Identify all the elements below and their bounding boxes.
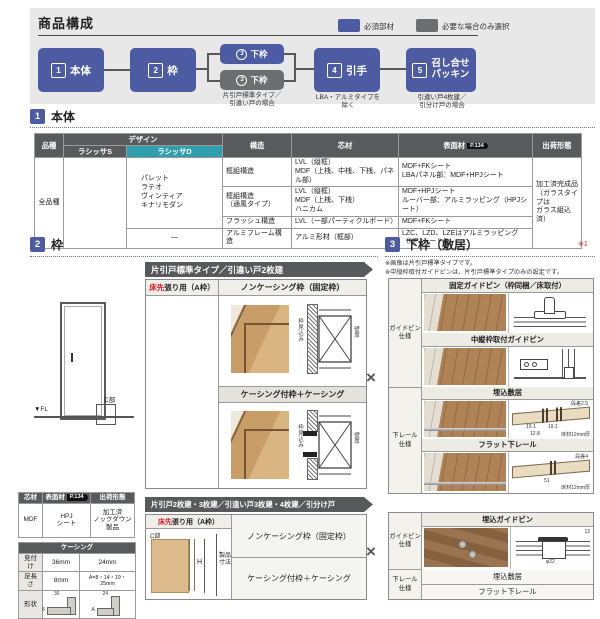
flow-branch-line — [207, 53, 209, 82]
guidepin-spec-label: ガイドピン 仕様 — [389, 279, 422, 388]
floor-first-red: 床先 — [158, 517, 172, 527]
section3-note1: ※画像は片引戸標準タイプです。 — [385, 260, 476, 269]
flow-node-lower-frame-optional: 3 下枠 — [220, 70, 284, 90]
legend-required-swatch — [338, 19, 360, 32]
fixed-guidepin-diagram — [510, 293, 592, 331]
section3-header: 3 下枠（敷居） — [385, 236, 478, 253]
cell-hyomen: MDF+FKシート LBAパネル部：MDF+HPJシート — [399, 158, 533, 187]
groove-line — [546, 408, 548, 422]
product-composition-panel: 商品構成 必須部材 必要な場合のみ選択 1 本体 2 枠 3 下枠 3 下枠 4… — [30, 8, 595, 104]
groove-line — [542, 409, 544, 423]
floor-line — [514, 377, 586, 379]
cell-kouzou: アルミフレーム構造 — [223, 228, 292, 249]
banner1-text: 片引戸標準タイプ／引違い戸2枚建 — [151, 264, 283, 276]
casing-profile-36: 36 8 — [45, 592, 77, 616]
flow-num-5: 5 — [412, 63, 427, 78]
legend-required-label: 必須部材 — [364, 21, 394, 32]
section2-rule — [30, 256, 378, 257]
flow-connector — [380, 68, 406, 70]
cell-hyomen: MDF+FKシート — [399, 216, 533, 228]
dim-128: 12.8 — [530, 431, 540, 437]
lower-frame-table-2: ガイドピン 仕様 下レール 仕様 埋込ガイドピン φ22 12 埋込敷居 フラッ… — [388, 512, 594, 600]
casing-shape-36: 36 8 — [43, 590, 80, 618]
dim-label-wakumikomi: 枠見込み — [296, 318, 304, 342]
plank-lines — [424, 294, 506, 331]
flow-label-packing: 召し合せ パッキン — [431, 59, 469, 81]
cell-divider — [508, 452, 509, 493]
noncasing-cell: ノンケーシング枠（固定枠） — [232, 515, 366, 558]
embedded-sill-header: 埋込敷居 — [422, 387, 593, 400]
banner-multi-panel-type: 片引戸2枚建・3枚建／引違い戸3枚建・4枚建／引分け戸 — [145, 497, 373, 512]
casing-profile-24: 24 A — [95, 592, 121, 616]
section3-title: 下枠（敷居） — [406, 236, 478, 253]
fixed-guidepin-header: 固定ガイドピン（枠同梱／床取付） — [422, 279, 593, 293]
flat-rail-header: フラット下レール — [422, 439, 593, 452]
groove-line — [556, 407, 558, 421]
cell-lasissa-s-empty — [64, 158, 127, 249]
flow-note-pull-handle: LBA・アルミタイプを 除く — [306, 94, 390, 110]
cell-hinshu: 全品種 — [35, 158, 64, 249]
rail-board — [512, 458, 590, 481]
frame-panel-2: 床先張り用（A枠） C部 H 製品 寸法 ノンケーシング枠（固定枠） ケーシング… — [145, 514, 367, 600]
flow-node-packing: 5 召し合せ パッキン — [406, 48, 476, 92]
col-header-hyomen: 表面材P.134 — [399, 134, 533, 158]
cell-divider — [508, 293, 509, 333]
casing-trim — [303, 431, 317, 436]
dim-191b: 19.1 — [548, 424, 558, 430]
mat-hyomen-label: 表面材 — [45, 494, 65, 501]
center-guidepin-photo — [424, 348, 506, 385]
center-guidepin-diagram — [510, 347, 592, 385]
col-header-hinshu: 品種 — [35, 134, 64, 158]
cell-kouzou: 框組構造 — [223, 158, 292, 187]
door-corner-photo — [231, 305, 289, 373]
casing-table-title: ケーシング — [19, 543, 136, 554]
cell-shinzai: アルミ形材（框部） — [292, 228, 399, 249]
cell-hyomen: MDF+HPJシート ルーバー部：アルミラッピング（HPJシート） — [399, 187, 533, 216]
dim-label-kabeatsu: 壁厚 — [352, 432, 360, 444]
wall-hatch — [307, 304, 318, 374]
dim-diameter: φ22 — [546, 559, 555, 565]
shape36-foot — [47, 607, 71, 615]
flow-num-2: 2 — [148, 63, 163, 78]
embedded-sill-diagram: 段差2.5 19.1 19.1 12.8 床材12mm厚 — [510, 400, 592, 438]
flow-note-packing: 引違い戸4枚建／ 引分け戸の場合 — [394, 94, 490, 110]
product-dim-line — [216, 534, 217, 596]
plank-lines — [424, 348, 506, 385]
casing-mitsuke-24: 24mm — [80, 553, 136, 572]
t2-flat-rail-row: フラット下レール — [422, 585, 593, 599]
groove-line — [560, 407, 562, 421]
legend-optional-swatch — [416, 19, 438, 32]
shape24-leg: A — [92, 607, 95, 613]
mat-header-hyomen: 表面材P.134 — [43, 493, 91, 504]
flow-num-1: 1 — [51, 63, 66, 78]
dim-yuka: 床材12mm厚 — [561, 484, 590, 491]
wall-hatch — [307, 458, 318, 480]
flow-label-lower-frame: 下枠 — [250, 74, 267, 86]
guide-pin-dot — [468, 550, 477, 559]
page-title: 商品構成 — [38, 13, 94, 32]
flow-num-3a: 3 — [236, 49, 247, 60]
door-corner-photo-casing — [231, 411, 289, 479]
fixed-guidepin-photo — [424, 294, 506, 331]
embedded-guidepin-header: 埋込ガイドピン — [422, 513, 593, 527]
dim-label-kabeatsu: 壁厚 — [352, 326, 360, 338]
flow-node-frame: 2 枠 — [130, 48, 196, 92]
screw-hole — [524, 362, 529, 367]
col-header-kouzou: 構造 — [223, 134, 292, 158]
dim-label-wakumikomi: 枠見込み — [296, 424, 304, 448]
board-face — [512, 407, 590, 426]
embedded-guidepin-photo — [424, 528, 508, 567]
flow-label-body: 本体 — [70, 63, 91, 78]
section2-number: 2 — [30, 237, 45, 252]
shape36-leg: 8 — [42, 607, 45, 613]
floor-first-header: 床先張り用（A枠） — [146, 515, 232, 529]
casing-shape-label: 形状 — [19, 590, 43, 618]
bracket-foot — [564, 367, 574, 379]
lower-frame-table-1: ガイドピン 仕様 下レール 仕様 固定ガイドピン（枠同梱／床取付） 中縦枠取付ガ… — [388, 278, 594, 494]
cell-kouzou: フラッシュ構造 — [223, 216, 292, 228]
shape24-dim: 24 — [103, 591, 109, 597]
main-body-spec-table: 品種 デザイン 構造 芯材 表面材P.134 出荷形態 ラシッサS ラシッサD … — [34, 133, 582, 249]
h-dim-label: H — [197, 559, 202, 566]
dim-191a: 19.1 — [526, 424, 536, 430]
col-header-lasissa-s: ラシッサS — [64, 146, 127, 158]
plank-lines — [424, 401, 506, 437]
page-ref-badge: P.134 — [67, 494, 88, 501]
floor-first-header: 床先張り用（A枠） — [146, 280, 219, 296]
casing-ashinaga-8: 8mm — [43, 572, 80, 591]
cell-divider — [510, 527, 511, 569]
col-header-lasissa-d: ラシッサD — [127, 146, 223, 158]
frame-section-wood — [151, 539, 189, 593]
mat-shinzai: MDF — [19, 503, 43, 537]
floor-first-red: 床先 — [149, 282, 164, 293]
flow-label-lower-frame: 下枠 — [250, 48, 267, 60]
flow-node-body: 1 本体 — [38, 48, 104, 92]
section1-title: 本体 — [51, 108, 75, 125]
casing-shape-24: 24 A — [80, 590, 136, 618]
banner-standard-type: 片引戸標準タイプ／引違い戸2枚建 — [145, 262, 373, 277]
casing-mitsuke-label: 見付け — [19, 553, 43, 572]
channel-line — [574, 349, 575, 377]
cell-shinzai: LVL（縦框） MDF（上桟、中桟、下桟、パネル部） — [292, 158, 399, 187]
title-underline — [38, 35, 478, 36]
plank-lines — [424, 453, 506, 491]
h-dim-line — [204, 539, 205, 593]
flow-node-lower-frame-required: 3 下枠 — [220, 44, 284, 64]
rail-spec-label: 下レール 仕様 — [389, 570, 422, 599]
flow-label-pull-handle: 引手 — [346, 63, 367, 78]
cell-design-dash: — — [127, 228, 223, 249]
cell-divider — [508, 347, 509, 387]
section1-header: 1 本体 — [30, 108, 75, 125]
flat-rail-row: 段差4 51 床材12mm厚 — [422, 452, 593, 493]
floor-first-rest: 張り用（A枠） — [172, 517, 219, 527]
casing-band: ケーシング付枠＋ケーシング — [219, 386, 366, 403]
cell-designs: パレット ラテオ ヴィンティア キナリモダン — [127, 158, 223, 229]
flow-num-4: 4 — [327, 63, 342, 78]
casing-cell: ケーシング付枠＋ケーシング — [232, 558, 366, 599]
flow-connector — [296, 68, 314, 70]
mat-shukka: 加工済 ノックダウン 製品 — [91, 503, 135, 537]
banner2-text: 片引戸2枚建・3枚建／引違い戸3枚建・4枚建／引分け戸 — [151, 500, 335, 510]
casing-ashinaga-a: A=8・14・19・25mm — [80, 572, 136, 591]
section3-note2: ※中縦枠取付ガイドピンは、片引戸標準タイプのみの設定です。 — [385, 269, 563, 278]
casing-mitsuke-36: 36mm — [43, 553, 80, 572]
section3-number: 3 — [385, 237, 400, 252]
casing-trim — [303, 452, 317, 457]
noncasing-section-diagram: 枠見込み 壁厚 — [296, 300, 360, 378]
mat-header-shukka: 出荷形態 — [91, 493, 135, 504]
cell-shinzai: LVL（縦框） MDF（上桟、下桟） ハニカム — [292, 187, 399, 216]
door-handle-mark — [71, 353, 73, 362]
embedded-sill-row: 段差2.5 19.1 19.1 12.8 床材12mm厚 — [422, 400, 593, 439]
guide-pin-dot — [458, 540, 467, 549]
cell-shinzai: LVL（一部パーティクルボード） — [292, 216, 399, 228]
casing-section-diagram: 枠見込み 壁厚 — [296, 406, 360, 484]
flat-rail-strip — [424, 482, 506, 485]
cross-mark: × — [366, 368, 376, 388]
col-header-design: デザイン — [64, 134, 223, 146]
product-dim-label: 製品 寸法 — [219, 553, 231, 567]
frame-edge-lines — [189, 539, 195, 591]
guidepin-spec-label: ガイドピン 仕様 — [389, 513, 422, 570]
cross-mark: × — [366, 542, 376, 562]
table-row: 全品種 パレット ラテオ ヴィンティア キナリモダン 框組構造 LVL（縦框） … — [35, 158, 582, 187]
screw-hole — [532, 362, 537, 367]
center-guidepin-row — [422, 347, 593, 387]
pin-cap — [538, 537, 568, 541]
col-header-shinzai: 芯材 — [292, 134, 399, 158]
cell-kouzou: 框組構造 （通風タイプ） — [223, 187, 292, 216]
floor-level-label: ▼FL — [34, 406, 48, 413]
hyomen-label: 表面材 — [443, 141, 465, 150]
c-detail-label: C部 — [104, 394, 115, 404]
frame-panel-1: 床先張り用（A枠） ノンケーシング枠（固定枠） 枠見込み 壁厚 ケーシング付枠＋… — [145, 279, 367, 489]
frame-xbox-diagram — [318, 414, 352, 476]
groove-line — [550, 461, 552, 475]
flow-connector — [208, 80, 220, 82]
flow-connector — [208, 53, 220, 55]
center-guidepin-header: 中縦枠取付ガイドピン — [422, 333, 593, 347]
embedded-sill-photo — [424, 401, 506, 437]
mat-hyomen: HPJ シート — [43, 503, 91, 537]
groove-line — [554, 461, 556, 475]
section3-rule — [385, 256, 595, 257]
fixed-guidepin-row — [422, 293, 593, 333]
channel-line — [562, 349, 563, 377]
noncasing-header: ノンケーシング枠（固定枠） — [219, 280, 366, 296]
rail-spec-label: 下レール 仕様 — [389, 388, 422, 493]
cell-shukka: 加工済完成品 （ガラスタイプは ガラス組込済） — [533, 158, 582, 249]
cell-divider — [508, 400, 509, 439]
section2-title: 枠 — [51, 236, 63, 253]
dim-depth: 12 — [584, 529, 590, 535]
legend-optional-label: 必要な場合のみ選択 — [442, 21, 510, 32]
page-ref-badge: P.134 — [467, 143, 488, 150]
col-header-shukka: 出荷形態 — [533, 134, 582, 158]
casing-ashinaga-label: 足長さ — [19, 572, 43, 591]
frame-material-table: 芯材 表面材P.134 出荷形態 MDF HPJ シート 加工済 ノックダウン … — [18, 492, 135, 538]
door-leaf-outline — [64, 306, 102, 416]
flow-node-pull-handle: 4 引手 — [314, 48, 380, 92]
flow-connector — [104, 69, 130, 71]
flow-note-lower-frame: 片引戸標準タイプ／ 引違い戸の場合 — [196, 92, 308, 108]
section2-header: 2 枠 — [30, 236, 63, 253]
dim-yuka: 床材12mm厚 — [561, 431, 590, 438]
embedded-guidepin-row: φ22 12 — [422, 527, 593, 569]
flow-label-frame: 枠 — [167, 63, 178, 78]
flat-rail-diagram: 段差4 51 床材12mm厚 — [510, 453, 592, 491]
dim-51: 51 — [544, 478, 550, 484]
casing-spec-table: ケーシング 見付け 36mm 24mm 足長さ 8mm A=8・14・19・25… — [18, 542, 136, 619]
t2-embedded-sill-row: 埋込敷居 — [422, 570, 593, 585]
section1-rule — [30, 127, 595, 128]
door-elevation-diagram — [60, 302, 106, 420]
shape36-dim: 36 — [54, 591, 60, 597]
embedded-guidepin-diagram: φ22 12 — [514, 527, 592, 567]
shape24-foot — [97, 608, 114, 616]
wall-hatch — [307, 410, 318, 432]
mat-header-shinzai: 芯材 — [19, 493, 43, 504]
frame-xbox-diagram — [318, 308, 352, 370]
pin-stem — [544, 297, 555, 314]
flow-num-3b: 3 — [236, 75, 247, 86]
sill-rail — [424, 428, 506, 431]
floor-first-rest: 張り用（A枠） — [164, 282, 214, 293]
section1-number: 1 — [30, 109, 45, 124]
flat-rail-photo — [424, 453, 506, 491]
floor-line — [34, 416, 134, 418]
pin-recess — [542, 541, 566, 559]
c-detail-box — [96, 404, 116, 425]
ref-mark: ※1 — [578, 240, 588, 248]
